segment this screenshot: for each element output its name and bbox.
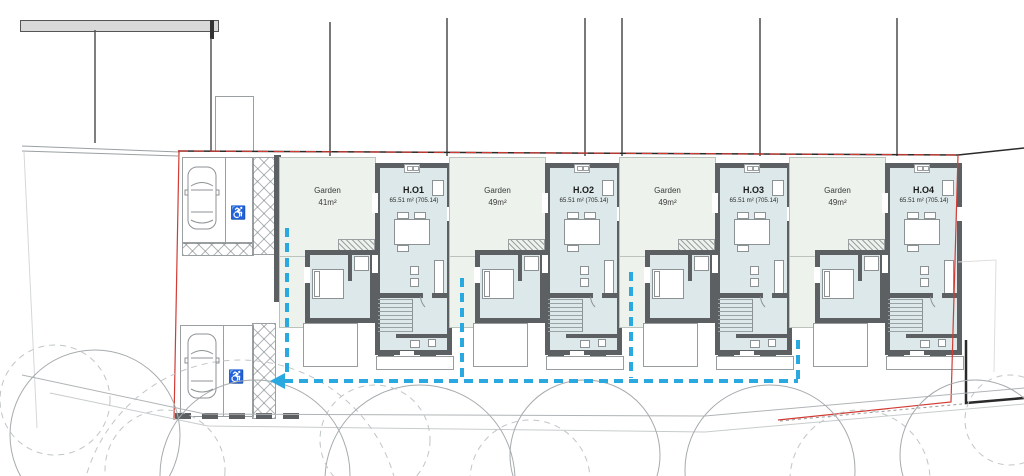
chair: [567, 212, 579, 219]
window-gap: [712, 255, 718, 273]
interior-wall: [545, 293, 593, 298]
sofa: [774, 260, 784, 296]
store-outline: [215, 96, 254, 152]
street-edge: [22, 375, 1024, 416]
coffee-table: [410, 278, 419, 287]
existing-wall-bar: [20, 20, 219, 32]
chair: [397, 245, 409, 252]
pillow: [654, 271, 660, 297]
garden-fill: [450, 257, 475, 327]
accessible-parking-icon: ♿: [230, 206, 246, 219]
hatched-path-lower: [252, 323, 276, 419]
boundary-red-left: [174, 151, 179, 420]
coffee-table: [750, 278, 759, 287]
window-gap: [644, 267, 650, 283]
chair: [754, 212, 766, 219]
chair: [737, 212, 749, 219]
house-area: 65.51 m² (705.14): [729, 197, 778, 203]
house-ho2: H.O2 65.51 m² (705.14): [545, 163, 622, 355]
garden-fill: [280, 257, 305, 327]
window-gap: [474, 267, 480, 283]
toilet: [920, 340, 930, 348]
dining-table: [734, 219, 770, 245]
meter-icon: [574, 164, 590, 173]
window-gap: [542, 193, 548, 213]
patio: [716, 356, 794, 370]
shower: [864, 256, 879, 271]
interior-wall: [375, 293, 423, 298]
patio: [303, 323, 358, 367]
sofa: [944, 260, 954, 296]
shower: [354, 256, 369, 271]
parking-bays-upper: [182, 157, 254, 244]
window-gap: [304, 267, 310, 283]
staircase: [378, 299, 413, 332]
dining-table: [904, 219, 940, 245]
toilet: [410, 340, 420, 348]
door-swing: [760, 296, 776, 312]
hatched-path-upper: [252, 157, 276, 255]
sofa: [434, 260, 444, 296]
bedroom-wing: [305, 250, 375, 323]
patio: [546, 356, 624, 370]
bed: [482, 269, 514, 299]
bedroom-wing: [475, 250, 545, 323]
staircase: [888, 299, 923, 332]
shower: [524, 256, 539, 271]
window-gap: [882, 193, 888, 213]
bedroom-wing: [645, 250, 715, 323]
bedroom-wing: [815, 250, 885, 323]
sink: [428, 339, 436, 347]
coffee-table: [580, 266, 589, 275]
chair: [924, 212, 936, 219]
chair: [414, 212, 426, 219]
chair: [737, 245, 749, 252]
interior-wall: [566, 334, 617, 338]
door-swing: [930, 296, 946, 312]
existing-wall-line: [95, 30, 211, 152]
house-ho3: H.O3 65.51 m² (705.14): [715, 163, 792, 355]
patio: [643, 323, 698, 367]
bay-divider: [223, 326, 224, 416]
pillow: [314, 271, 320, 297]
sink: [938, 339, 946, 347]
window-gap: [882, 255, 888, 273]
chair: [397, 212, 409, 219]
house-area: 65.51 m² (705.14): [389, 197, 438, 203]
interior-wall: [736, 334, 787, 338]
chair: [907, 212, 919, 219]
shower: [694, 256, 709, 271]
bath-wall: [518, 255, 522, 281]
interior-wall: [906, 334, 957, 338]
coffee-table: [920, 266, 929, 275]
pillow: [824, 271, 830, 297]
sofa: [604, 260, 614, 296]
sink: [768, 339, 776, 347]
fence-post-line: [330, 18, 897, 156]
house-area: 65.51 m² (705.14): [559, 197, 608, 203]
dining-table: [564, 219, 600, 245]
pillow: [484, 271, 490, 297]
verge-line: [24, 152, 37, 428]
door-swing: [420, 296, 436, 312]
interior-wall: [715, 293, 763, 298]
sink: [598, 339, 606, 347]
window-gap: [957, 207, 963, 221]
meter-icon: [404, 164, 420, 173]
kitchen-unit: [942, 180, 954, 196]
window-gap: [372, 193, 378, 213]
window-gap: [712, 193, 718, 213]
existing-wall-end: [210, 20, 214, 39]
hatched-path-upper-bottom: [182, 242, 254, 256]
plot-unit-4: Garden 49m² H.O4 65.51 m² (705.14): [790, 155, 962, 370]
garden-fill: [790, 257, 815, 327]
patio: [886, 356, 964, 370]
patio: [473, 323, 528, 367]
kitchen-unit: [772, 180, 784, 196]
coffee-table: [920, 278, 929, 287]
garden-label: Garden 49m²: [790, 185, 885, 210]
coffee-table: [410, 266, 419, 275]
bay-divider: [225, 158, 226, 243]
window-gap: [542, 255, 548, 273]
hedge-line: [780, 404, 962, 421]
plot-unit-1: Garden 41m² H.O1 65.51 m² (705.14): [280, 155, 452, 370]
lower-boundary-wall-dashes: [175, 413, 301, 419]
bath-wall: [348, 255, 352, 281]
house-ho1: H.O1 65.51 m² (705.14): [375, 163, 452, 355]
patio: [376, 356, 454, 370]
house-ho4: H.O4 65.51 m² (705.14): [885, 163, 962, 355]
chair: [584, 212, 596, 219]
toilet: [580, 340, 590, 348]
bath-wall: [858, 255, 862, 281]
interior-wall: [885, 293, 933, 298]
garden-label: Garden 49m²: [450, 185, 545, 210]
chair: [907, 245, 919, 252]
coffee-table: [580, 278, 589, 287]
garden-fill: [620, 257, 645, 327]
chair: [567, 245, 579, 252]
garden-label: Garden 41m²: [280, 185, 375, 210]
boundary-black: [178, 148, 1024, 155]
plot-unit-2: Garden 49m² H.O2 65.51 m² (705.14): [450, 155, 622, 370]
staircase: [718, 299, 753, 332]
meter-icon: [744, 164, 760, 173]
patio: [813, 323, 868, 367]
site-plan-canvas: ♿ ♿ Garden 41m² H.O1 65.51 m² (705.14): [0, 0, 1024, 476]
kerb-line: [22, 146, 180, 156]
bed: [652, 269, 684, 299]
window-gap: [814, 267, 820, 283]
bath-wall: [688, 255, 692, 281]
staircase: [548, 299, 583, 332]
plot-unit-3: Garden 49m² H.O3 65.51 m² (705.14): [620, 155, 792, 370]
kitchen-unit: [602, 180, 614, 196]
coffee-table: [750, 266, 759, 275]
window-gap: [372, 255, 378, 273]
toilet: [750, 340, 760, 348]
dining-table: [394, 219, 430, 245]
boundary-black-corner: [966, 340, 1024, 403]
kitchen-unit: [432, 180, 444, 196]
garden-label: Garden 49m²: [620, 185, 715, 210]
door-swing: [590, 296, 606, 312]
house-area: 65.51 m² (705.14): [899, 197, 948, 203]
interior-wall: [396, 334, 447, 338]
bed: [822, 269, 854, 299]
accessible-parking-icon: ♿: [228, 370, 244, 383]
bed: [312, 269, 344, 299]
meter-icon: [914, 164, 930, 173]
